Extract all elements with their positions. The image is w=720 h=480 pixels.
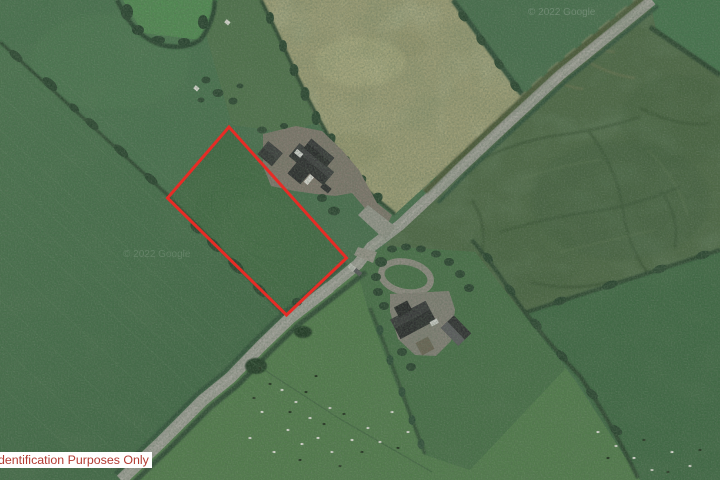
svg-text:© 2022 Google: © 2022 Google (528, 7, 596, 18)
svg-text:© 2022 Google: © 2022 Google (123, 249, 191, 260)
